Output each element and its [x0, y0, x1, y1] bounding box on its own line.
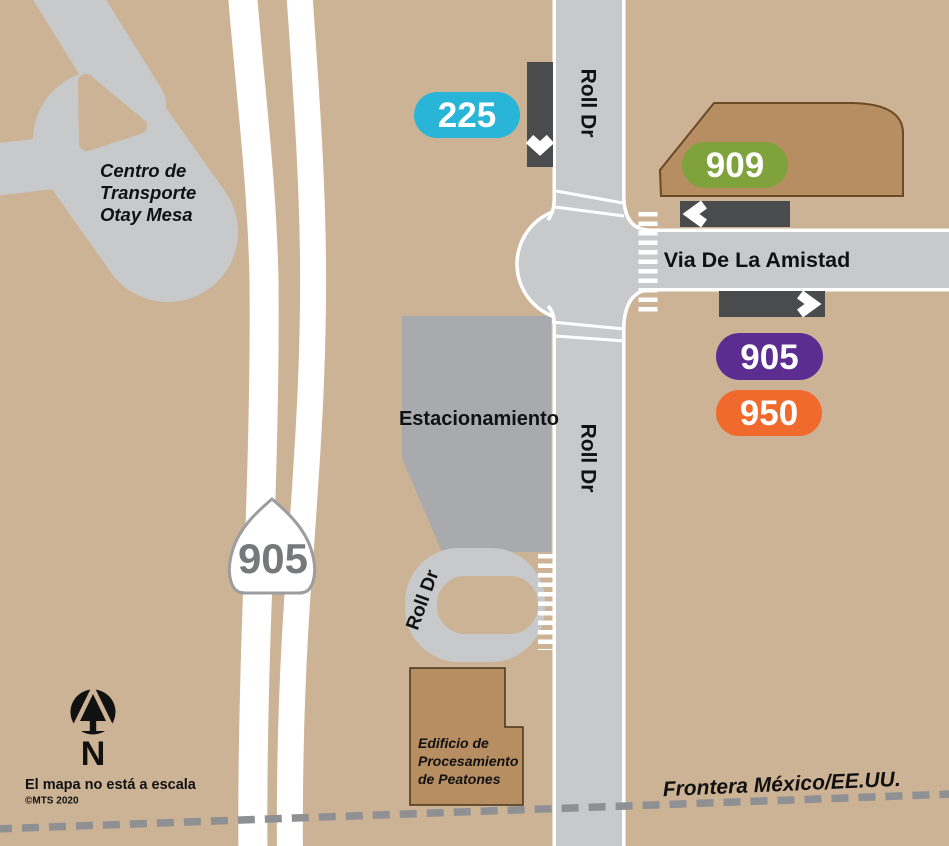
route-905-badge: 905 [716, 333, 823, 380]
roll-dr-label-lower: Roll Dr [577, 424, 600, 493]
svg-text:de Peatones: de Peatones [418, 771, 501, 787]
parking-label: Estacionamiento [399, 408, 559, 430]
via-de-la-amistad-label: Via De La Amistad [664, 248, 850, 272]
route-909-number: 909 [706, 146, 764, 185]
bus-stop-bar-roll-dr [527, 62, 553, 167]
svg-text:Procesamiento: Procesamiento [418, 753, 519, 769]
compass-north-label: N [81, 735, 106, 773]
svg-text:Edificio de: Edificio de [418, 735, 489, 751]
bus-loop-island [437, 576, 538, 634]
scale-note: El mapa no está a escala [25, 777, 197, 793]
route-950-number: 950 [740, 394, 798, 433]
transit-center-label: Centro de Transporte Otay Mesa [100, 160, 196, 225]
route-950-badge: 950 [716, 390, 822, 436]
transit-map: 225 909 905 950 905 N Roll Dr Roll Dr Ro… [0, 0, 949, 846]
bus-stop-bar-via-eastbound [719, 291, 825, 317]
roll-dr-label-upper: Roll Dr [577, 69, 600, 138]
route-225-number: 225 [438, 96, 496, 135]
bus-stop-bar-via-westbound [680, 201, 790, 227]
svg-text:Centro de: Centro de [100, 160, 186, 181]
highway-905-number: 905 [238, 535, 308, 582]
svg-text:Otay Mesa: Otay Mesa [100, 204, 193, 225]
route-225-badge: 225 [414, 92, 520, 138]
route-905-number: 905 [740, 338, 798, 377]
copyright-note: ©MTS 2020 [25, 796, 79, 807]
route-909-badge: 909 [682, 142, 788, 188]
svg-text:Transporte: Transporte [100, 182, 196, 203]
